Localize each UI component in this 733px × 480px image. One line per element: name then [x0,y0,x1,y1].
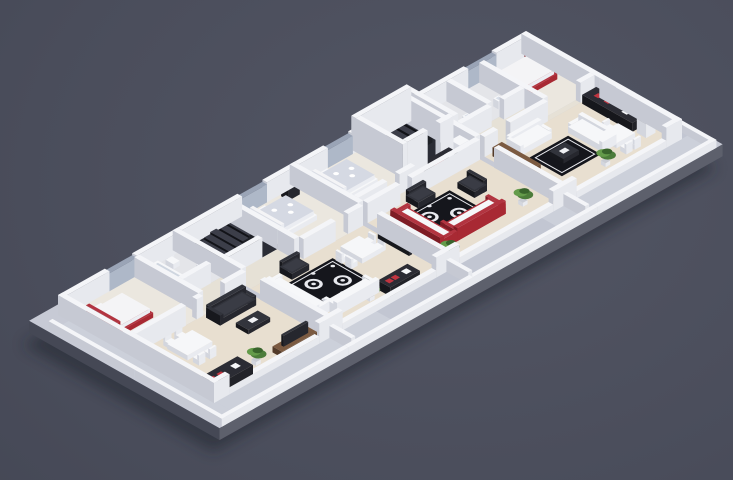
floorplan-render [0,0,733,480]
isometric-scene [0,0,733,480]
